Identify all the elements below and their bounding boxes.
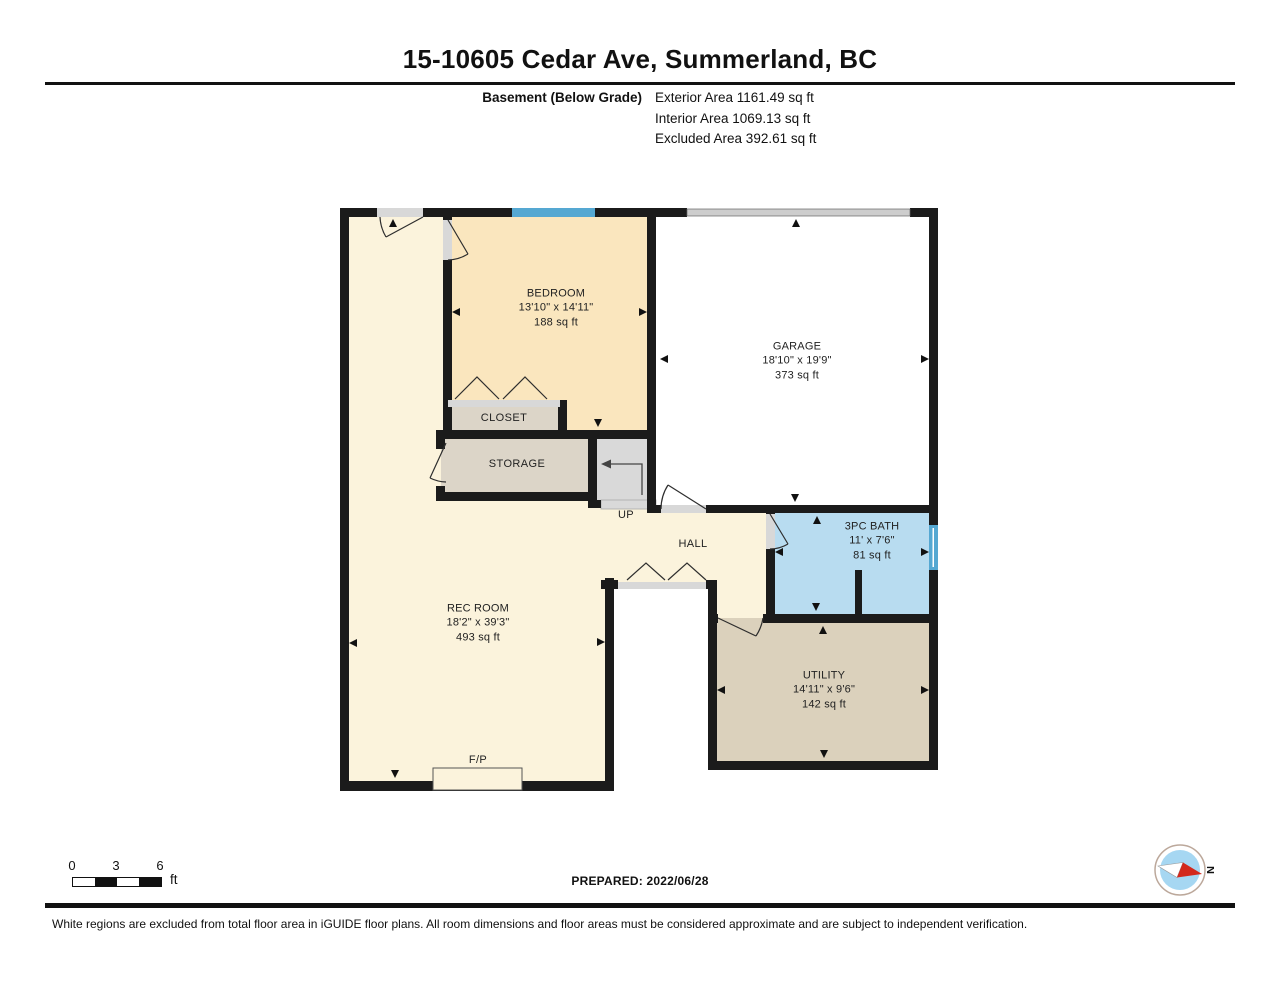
interior-area-line: Interior Area 1069.13 sq ft — [655, 111, 810, 126]
scale-tick-3: 3 — [112, 858, 119, 873]
room-area: 188 sq ft — [519, 315, 594, 329]
room-area: 493 sq ft — [447, 630, 510, 644]
room-name: 3PC BATH — [845, 520, 900, 534]
scale-tick-0: 0 — [68, 858, 75, 873]
room-dims: 14'11" x 9'6" — [793, 683, 855, 697]
stairs — [592, 433, 656, 503]
room-area: 81 sq ft — [845, 548, 900, 562]
room-label-garage: GARAGE 18'10" x 19'9" 373 sq ft — [762, 340, 831, 383]
room-dims: 13'10" x 14'11" — [519, 301, 594, 315]
prepared-date-label: PREPARED: 2022/06/28 — [0, 874, 1280, 888]
fireplace-box — [433, 768, 522, 790]
room-label-closet: CLOSET — [481, 412, 527, 424]
scale-tick-6: 6 — [156, 858, 163, 873]
room-label-storage: STORAGE — [489, 458, 545, 470]
room-label-utility: UTILITY 14'11" x 9'6" 142 sq ft — [793, 669, 855, 712]
room-dims: 18'10" x 19'9" — [762, 354, 831, 368]
room-area: 142 sq ft — [793, 697, 855, 711]
fireplace-label: F/P — [469, 754, 487, 766]
room-name: GARAGE — [762, 340, 831, 354]
room-label-hall: HALL — [678, 538, 707, 550]
exterior-area-line: Exterior Area 1161.49 sq ft — [655, 90, 814, 105]
room-name: REC ROOM — [447, 602, 510, 616]
stairs-up-label: UP — [618, 509, 634, 521]
room-label-rec-room: REC ROOM 18'2" x 39'3" 493 sq ft — [447, 602, 510, 645]
room-name: UTILITY — [793, 669, 855, 683]
floor-label: Basement (Below Grade) — [0, 90, 642, 105]
page-title: 15-10605 Cedar Ave, Summerland, BC — [0, 44, 1280, 75]
compass-icon: N — [1150, 840, 1214, 904]
room-label-bath: 3PC BATH 11' x 7'6" 81 sq ft — [845, 520, 900, 563]
room-name: BEDROOM — [519, 287, 594, 301]
title-divider — [45, 82, 1235, 85]
bath-window-pane-line — [933, 528, 935, 567]
room-dims: 18'2" x 39'3" — [447, 616, 510, 630]
floor-plan-page: 15-10605 Cedar Ave, Summerland, BC Basem… — [0, 0, 1280, 989]
floor-plan-drawing: BEDROOM 13'10" x 14'11" 188 sq ft GARAGE… — [340, 205, 940, 795]
garage-overhead-door — [687, 209, 910, 216]
footer-divider — [45, 903, 1235, 908]
disclaimer-text: White regions are excluded from total fl… — [52, 917, 1027, 931]
compass-north-label: N — [1204, 866, 1214, 874]
excluded-area-line: Excluded Area 392.61 sq ft — [655, 131, 816, 146]
room-label-bedroom: BEDROOM 13'10" x 14'11" 188 sq ft — [519, 287, 594, 330]
room-area: 373 sq ft — [762, 368, 831, 382]
bedroom-window — [512, 208, 595, 217]
room-dims: 11' x 7'6" — [845, 534, 900, 548]
